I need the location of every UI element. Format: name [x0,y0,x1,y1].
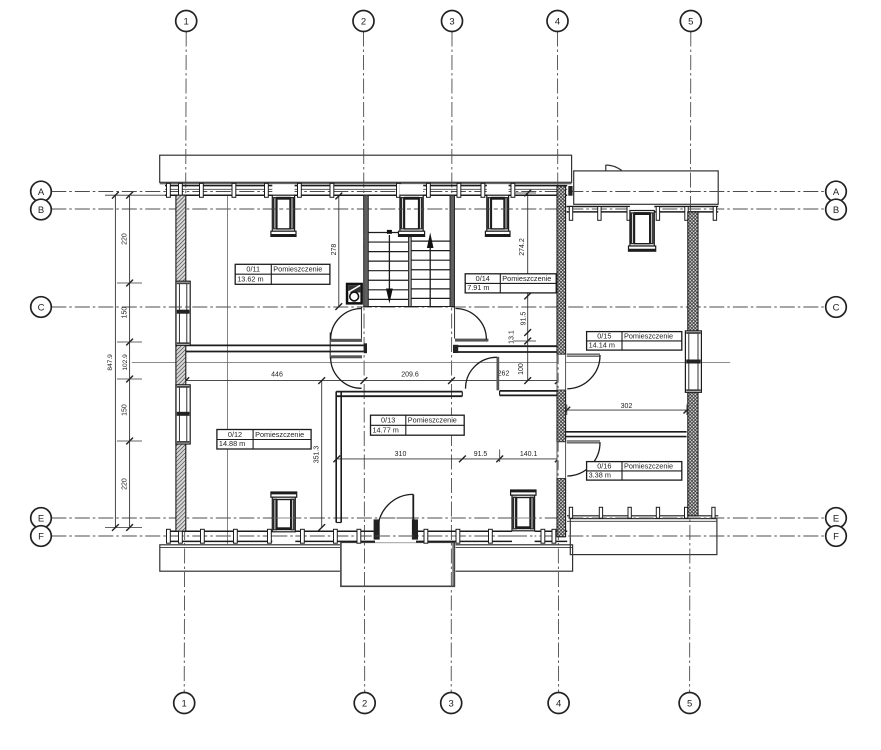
svg-text:5: 5 [687,698,692,709]
svg-text:102.9: 102.9 [122,354,129,371]
svg-text:E: E [38,513,44,524]
svg-text:150: 150 [121,307,128,319]
svg-text:278: 278 [331,244,338,256]
svg-text:14.14 m: 14.14 m [589,340,615,349]
svg-text:274.2: 274.2 [519,238,526,256]
svg-text:351.3: 351.3 [314,446,321,464]
svg-text:2: 2 [361,16,366,27]
svg-text:3.38 m: 3.38 m [589,470,611,479]
svg-text:7.91 m: 7.91 m [467,283,489,292]
svg-text:262: 262 [498,370,510,377]
svg-text:140.1: 140.1 [520,451,538,458]
svg-text:0/11: 0/11 [246,265,260,274]
svg-text:B: B [38,205,44,216]
svg-text:Pomieszczenie: Pomieszczenie [255,430,304,439]
svg-text:847.9: 847.9 [107,354,114,371]
svg-text:446: 446 [271,372,283,379]
svg-text:4: 4 [556,698,561,709]
svg-text:209.6: 209.6 [401,372,419,379]
svg-text:13.62 m: 13.62 m [237,275,263,284]
svg-text:4: 4 [555,16,560,27]
svg-text:Pomieszczenie: Pomieszczenie [273,265,322,274]
svg-text:150: 150 [121,404,128,416]
svg-text:1: 1 [182,698,187,709]
svg-text:5: 5 [688,16,693,27]
svg-text:Pomieszczenie: Pomieszczenie [624,461,673,470]
svg-text:F: F [38,531,44,542]
svg-text:91.5: 91.5 [521,312,528,326]
svg-text:1: 1 [184,16,189,27]
svg-text:A: A [833,187,840,198]
svg-text:F: F [833,531,839,542]
svg-text:0/16: 0/16 [597,461,611,470]
svg-text:310: 310 [395,451,407,458]
svg-text:C: C [833,302,840,313]
svg-text:13.1: 13.1 [509,330,516,344]
svg-text:3: 3 [449,16,454,27]
svg-text:E: E [833,513,839,524]
svg-text:C: C [38,302,45,313]
svg-text:91.5: 91.5 [474,451,488,458]
svg-text:220: 220 [121,233,128,245]
svg-text:Pomieszczenie: Pomieszczenie [502,274,551,283]
svg-text:100: 100 [518,363,525,375]
svg-text:A: A [38,187,45,198]
svg-text:3: 3 [449,698,454,709]
svg-text:B: B [833,205,839,216]
svg-text:14.88 m: 14.88 m [219,439,245,448]
svg-text:Pomieszczenie: Pomieszczenie [408,416,457,425]
svg-text:0/12: 0/12 [228,430,242,439]
svg-text:0/14: 0/14 [476,274,490,283]
svg-text:302: 302 [621,403,633,410]
svg-text:14.77 m: 14.77 m [373,425,399,434]
svg-text:220: 220 [121,478,128,490]
svg-text:0/15: 0/15 [597,331,611,340]
svg-text:Pomieszczenie: Pomieszczenie [624,331,673,340]
svg-text:0/13: 0/13 [381,416,395,425]
svg-text:2: 2 [362,698,367,709]
